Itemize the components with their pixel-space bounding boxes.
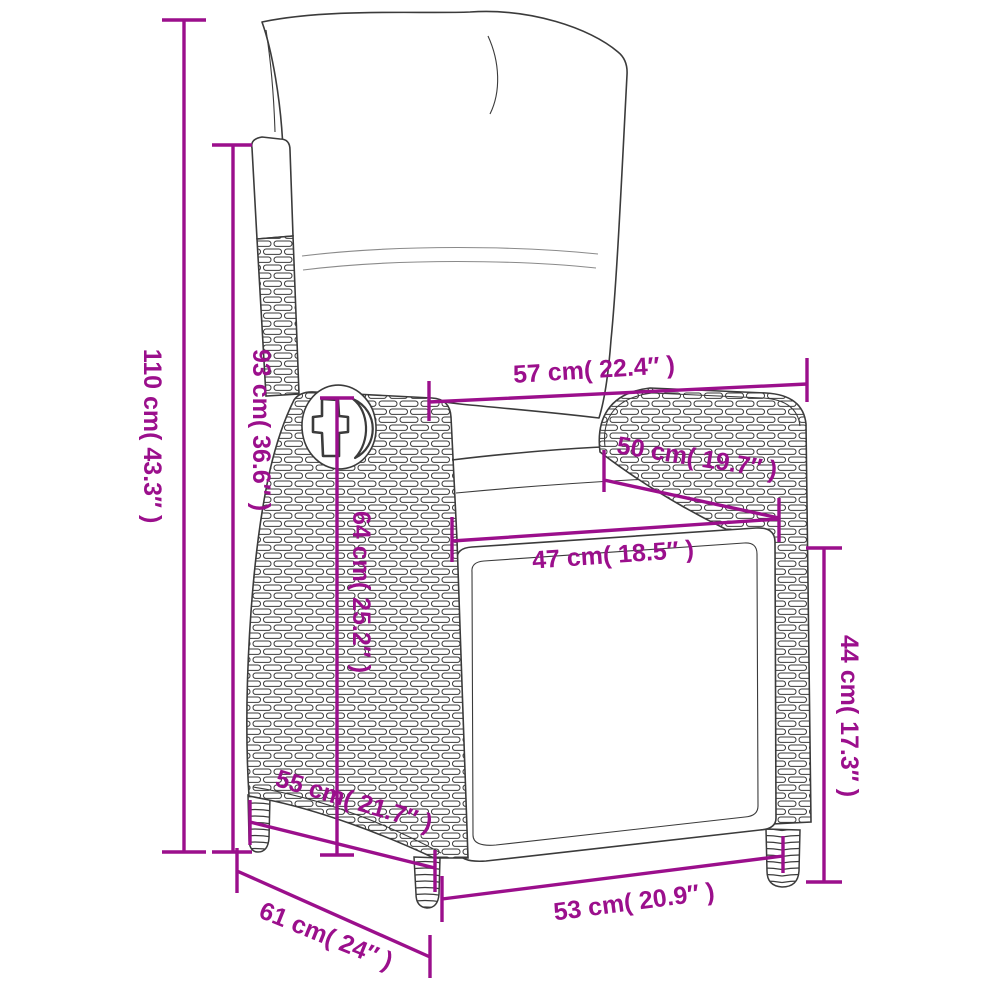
dim-label-seat-height: 44 cm( 17.3″ ) bbox=[835, 635, 863, 797]
diagram-canvas: 110 cm( 43.3″ ) 93 cm( 36.6″ ) 64 cm( 25… bbox=[0, 0, 1000, 1000]
dim-label-bottom-width: 53 cm( 20.9″ ) bbox=[552, 878, 716, 927]
dim-overall-height: 110 cm( 43.3″ ) bbox=[138, 20, 206, 852]
dim-label-overall-height: 110 cm( 43.3″ ) bbox=[138, 349, 166, 524]
dim-label-side-panel-height: 64 cm( 25.2″ ) bbox=[347, 511, 375, 673]
dim-label-overall-depth: 61 cm( 24″ ) bbox=[255, 897, 396, 976]
product-dimension-diagram: 110 cm( 43.3″ ) 93 cm( 36.6″ ) 64 cm( 25… bbox=[0, 0, 1000, 1000]
dim-seat-height: 44 cm( 17.3″ ) bbox=[806, 548, 863, 882]
dim-overall-depth: 61 cm( 24″ ) bbox=[237, 848, 430, 978]
dim-label-backrest-height: 93 cm( 36.6″ ) bbox=[247, 349, 275, 511]
chair-front-panel bbox=[457, 528, 776, 861]
